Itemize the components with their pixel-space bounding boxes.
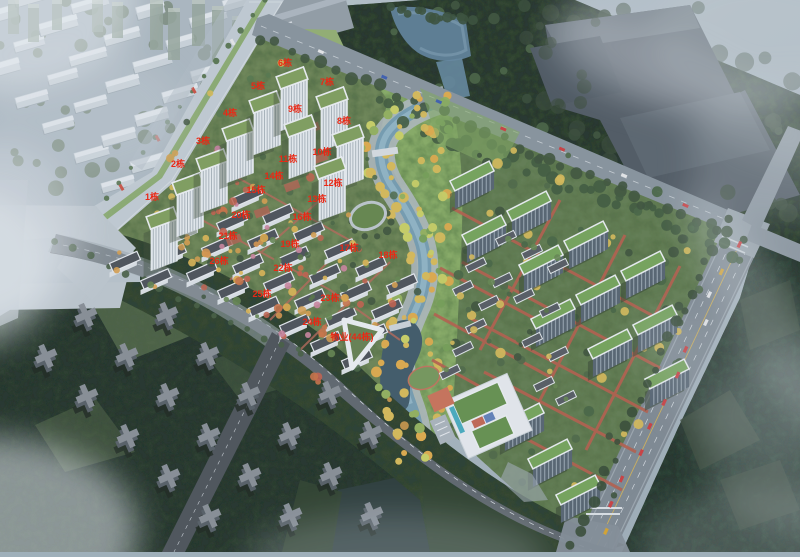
svg-text:23栋: 23栋 bbox=[320, 292, 339, 303]
svg-text:11栋: 11栋 bbox=[279, 153, 298, 164]
svg-text:18栋: 18栋 bbox=[378, 249, 397, 260]
svg-text:3栋: 3栋 bbox=[196, 135, 210, 146]
svg-text:物业(44栋): 物业(44栋) bbox=[330, 331, 373, 342]
svg-text:16栋: 16栋 bbox=[292, 211, 311, 222]
svg-text:10栋: 10栋 bbox=[312, 146, 331, 157]
svg-text:26栋: 26栋 bbox=[209, 255, 228, 266]
svg-text:14栋: 14栋 bbox=[264, 170, 283, 181]
svg-text:25栋: 25栋 bbox=[252, 288, 271, 299]
svg-text:17栋: 17栋 bbox=[339, 242, 358, 253]
svg-text:6栋: 6栋 bbox=[278, 57, 292, 68]
svg-text:21栋: 21栋 bbox=[218, 230, 237, 241]
svg-text:8栋: 8栋 bbox=[337, 115, 351, 126]
svg-text:4栋: 4栋 bbox=[223, 107, 237, 118]
svg-text:7栋: 7栋 bbox=[320, 76, 334, 87]
svg-text:2栋: 2栋 bbox=[171, 158, 185, 169]
svg-text:13栋: 13栋 bbox=[307, 193, 326, 204]
svg-text:1栋: 1栋 bbox=[145, 191, 159, 202]
svg-text:19栋: 19栋 bbox=[280, 238, 299, 249]
svg-text:12栋: 12栋 bbox=[323, 177, 342, 188]
svg-text:22栋: 22栋 bbox=[273, 262, 292, 273]
svg-text:9栋: 9栋 bbox=[288, 103, 302, 114]
svg-text:20栋: 20栋 bbox=[231, 209, 250, 220]
svg-text:5栋: 5栋 bbox=[251, 80, 265, 91]
svg-text:15栋: 15栋 bbox=[246, 184, 265, 195]
svg-text:24栋: 24栋 bbox=[302, 316, 321, 327]
